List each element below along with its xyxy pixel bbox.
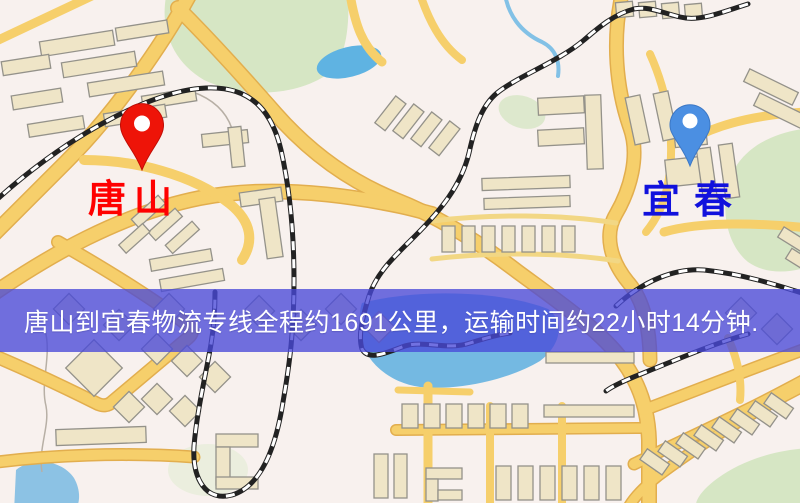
- map-view[interactable]: 唐山到宜春物流专线全程约1691公里，运输时间约22小时14分钟. 唐山 宜春: [0, 0, 800, 503]
- destination-pin-icon[interactable]: [670, 105, 710, 166]
- pins-overlay: [0, 0, 800, 503]
- origin-pin-icon[interactable]: [121, 104, 164, 170]
